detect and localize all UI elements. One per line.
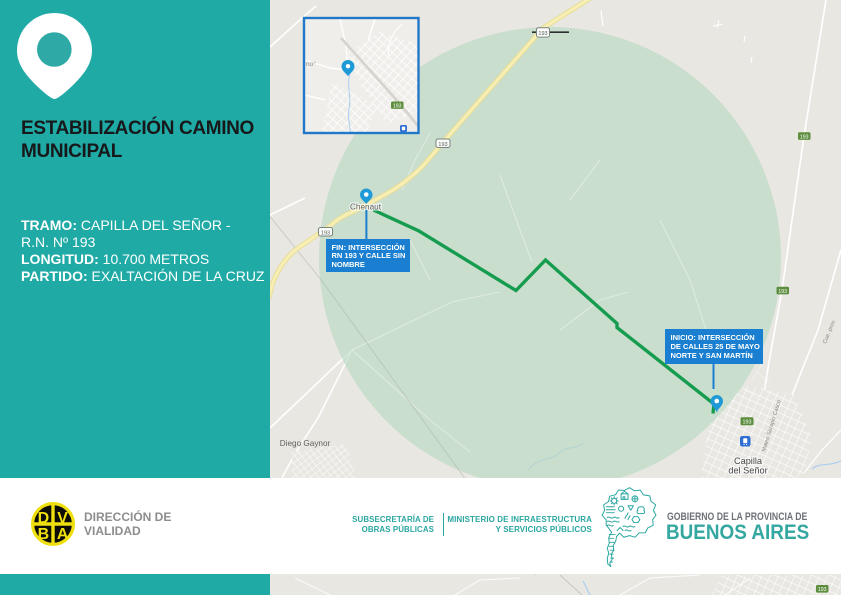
svg-text:del Señor: del Señor — [728, 466, 767, 476]
svg-text:193: 193 — [818, 587, 827, 593]
svg-text:193: 193 — [743, 419, 752, 425]
svg-text:Diego Gaynor: Diego Gaynor — [280, 439, 331, 448]
svg-text:Capilla: Capilla — [734, 456, 763, 466]
svg-text:D: D — [38, 510, 50, 527]
svg-text:193: 193 — [800, 134, 809, 140]
svg-text:193: 193 — [438, 142, 447, 148]
svg-text:no°: no° — [306, 60, 316, 68]
svg-text:V: V — [57, 510, 68, 527]
svg-text:A: A — [57, 526, 69, 543]
svg-text:193: 193 — [393, 103, 402, 109]
svg-text:193: 193 — [538, 31, 547, 37]
svg-text:193: 193 — [321, 230, 330, 236]
svg-text:B: B — [38, 526, 50, 543]
svg-text:193: 193 — [778, 289, 787, 295]
